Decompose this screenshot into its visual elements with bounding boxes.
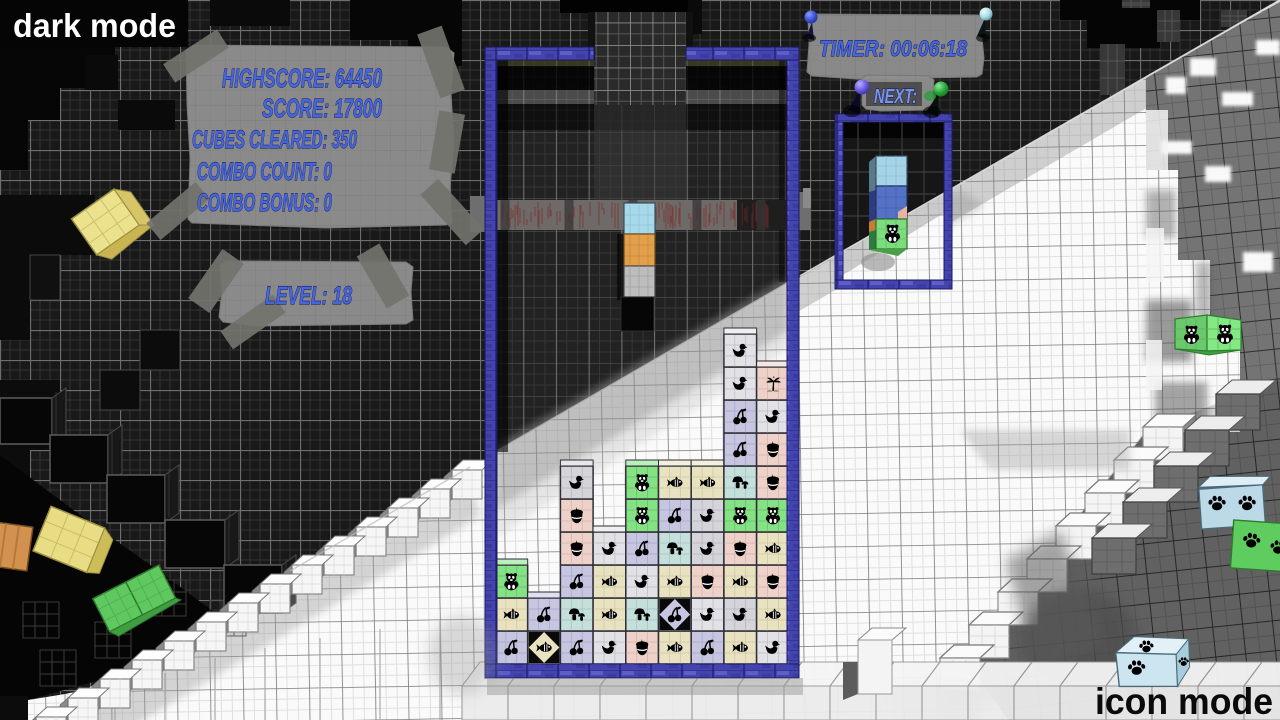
svg-text:COMBO BONUS: 0: COMBO BONUS: 0 [197,189,332,217]
svg-text:dark mode: dark mode [13,7,176,44]
svg-text:icon mode: icon mode [1095,681,1273,720]
svg-text:LEVEL: 18: LEVEL: 18 [265,282,352,310]
svg-text:TIMER: 00:06:18: TIMER: 00:06:18 [819,36,968,61]
svg-text:COMBO COUNT: 0: COMBO COUNT: 0 [197,158,332,186]
svg-text:NEXT:: NEXT: [874,86,917,108]
svg-text:HIGHSCORE: 64450: HIGHSCORE: 64450 [222,63,382,93]
svg-text:SCORE: 17800: SCORE: 17800 [262,93,382,123]
svg-text:CUBES CLEARED: 350: CUBES CLEARED: 350 [192,126,357,154]
